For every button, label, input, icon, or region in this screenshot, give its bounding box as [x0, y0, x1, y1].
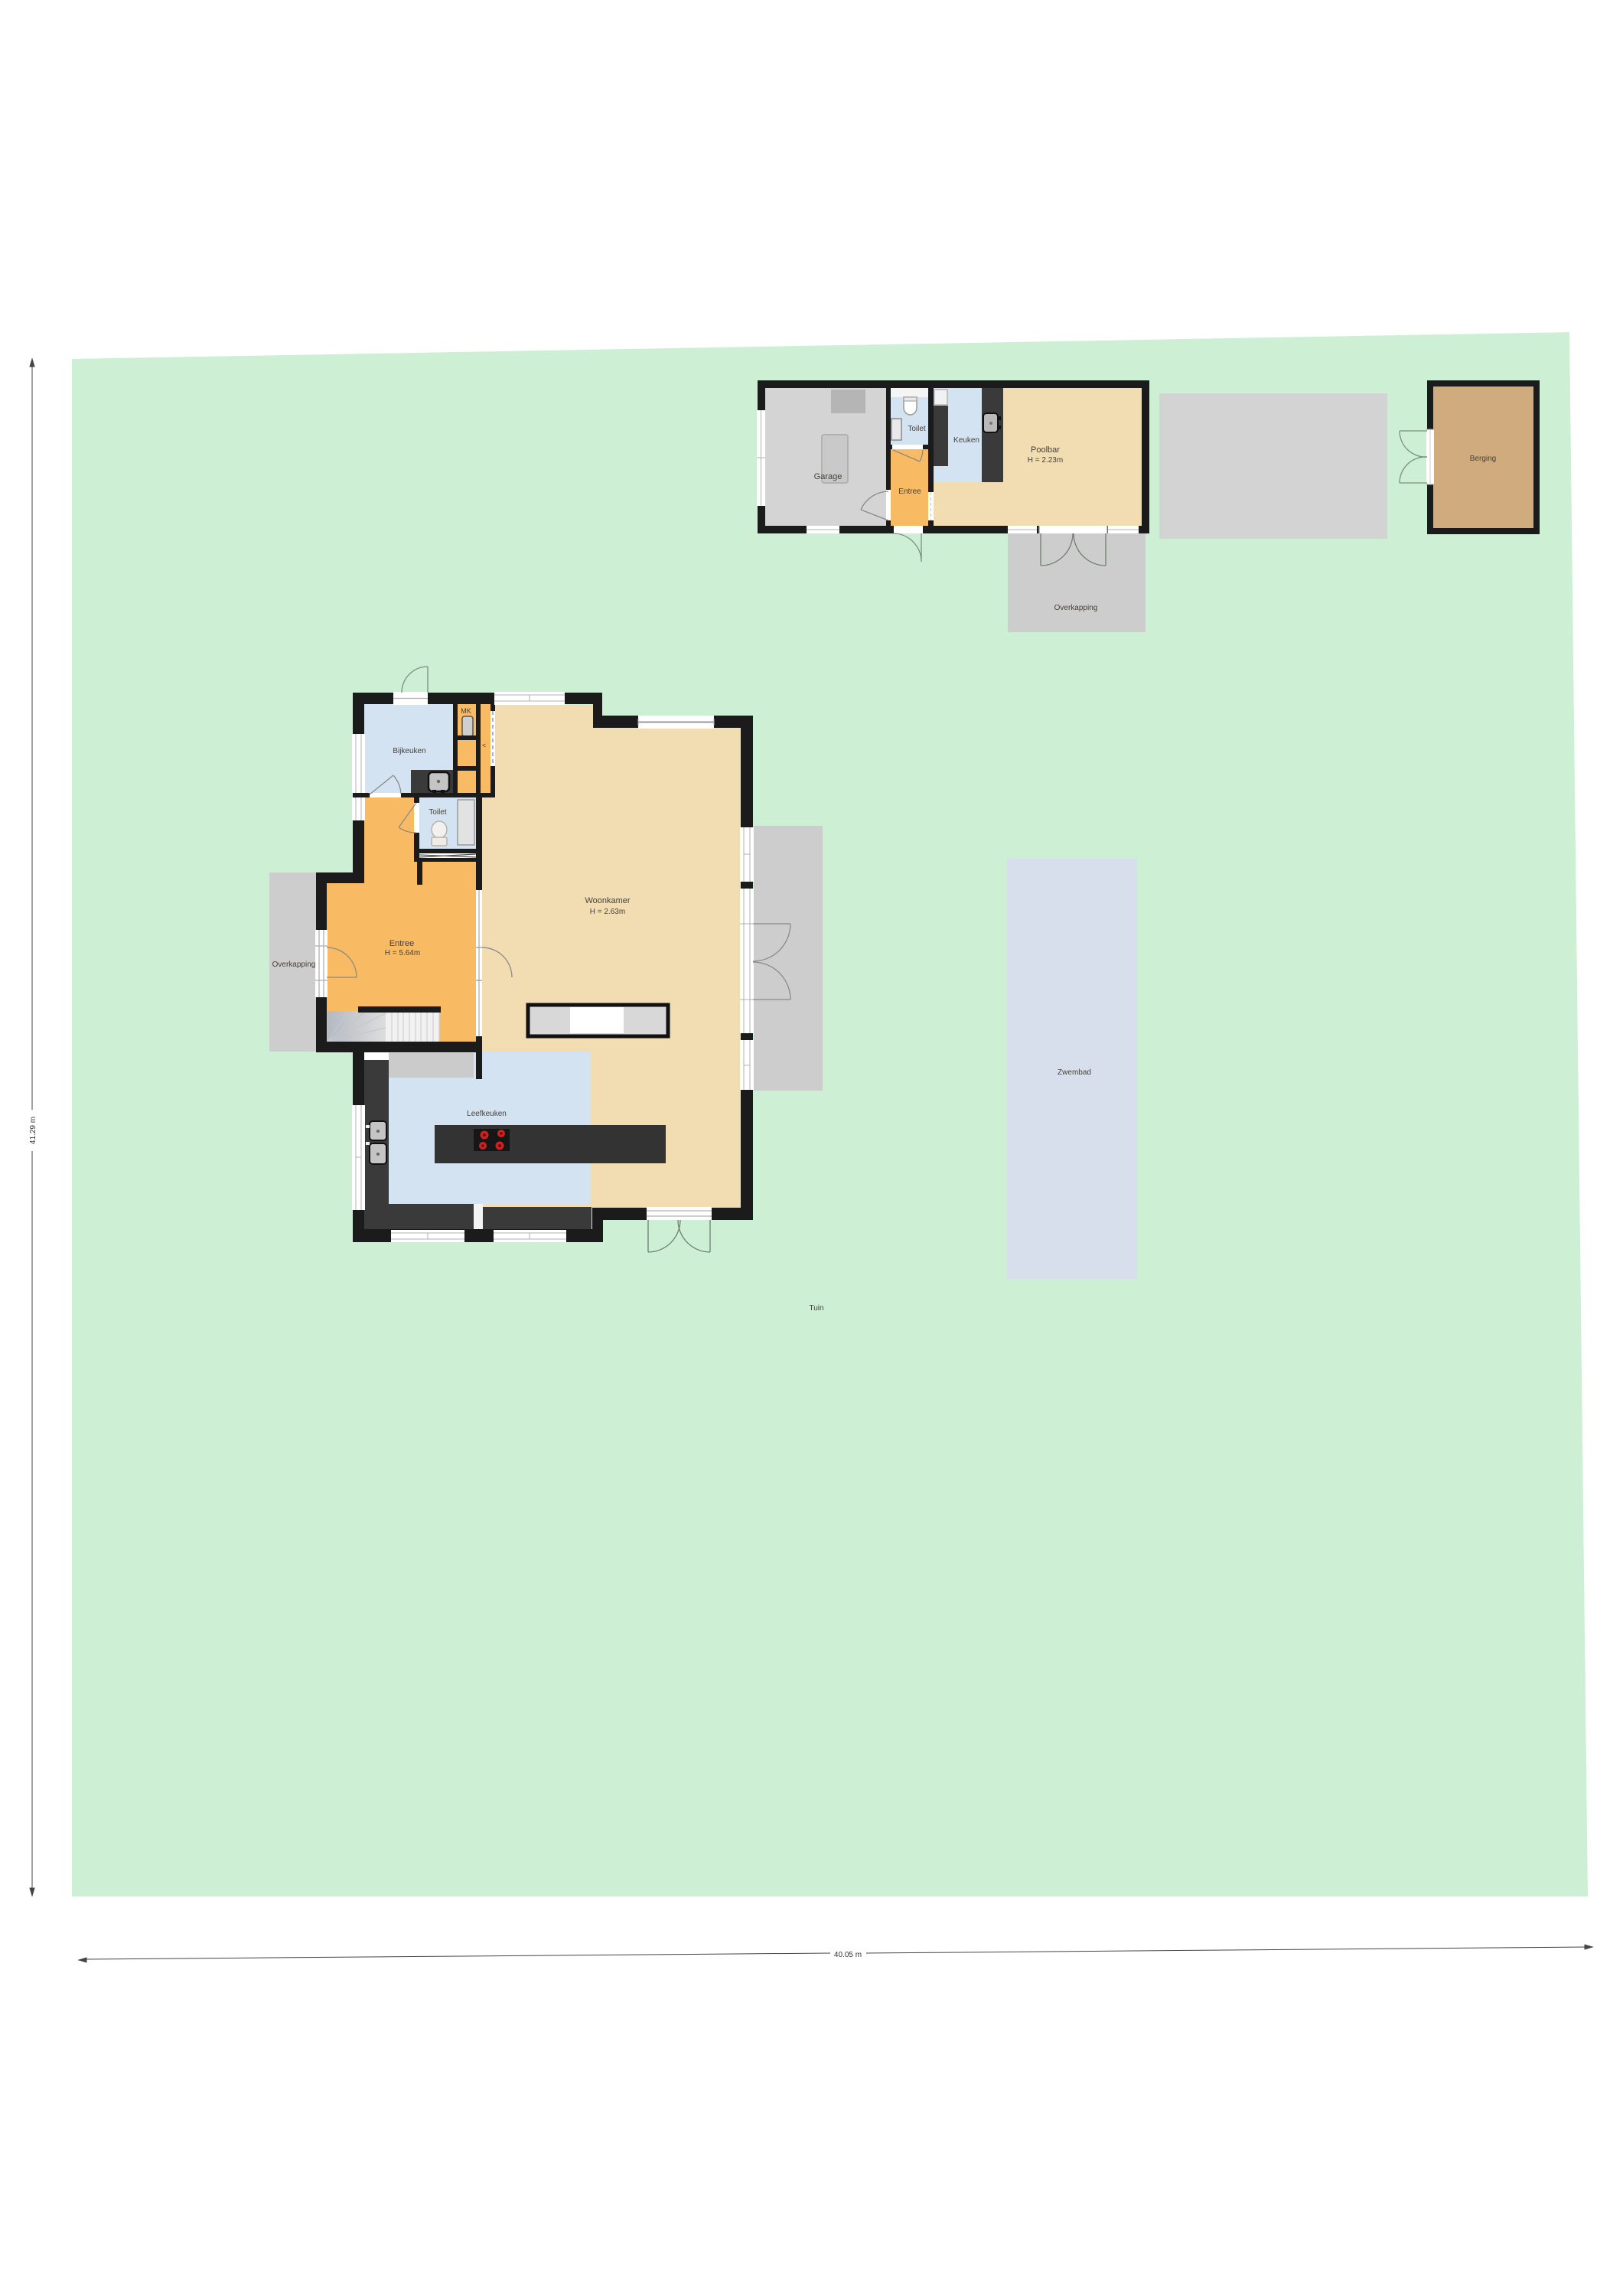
svg-text:H = 2.23m: H = 2.23m: [1028, 456, 1063, 465]
svg-text:Overkapping: Overkapping: [1054, 604, 1098, 612]
svg-text:Toilet: Toilet: [908, 425, 926, 433]
svg-text:Entree: Entree: [898, 488, 921, 496]
svg-text:H = 2.63m: H = 2.63m: [590, 908, 625, 916]
svg-text:Garage: Garage: [814, 472, 842, 481]
svg-text:Leefkeuken: Leefkeuken: [467, 1110, 507, 1118]
svg-text:Tuin: Tuin: [809, 1304, 823, 1313]
svg-text:Keuken: Keuken: [953, 436, 979, 445]
svg-text:40.05 m: 40.05 m: [834, 1951, 862, 1959]
svg-text:<: <: [482, 742, 486, 749]
svg-text:H = 5.64m: H = 5.64m: [385, 949, 420, 957]
svg-text:41.29 m: 41.29 m: [29, 1117, 37, 1144]
svg-text:Overkapping: Overkapping: [272, 960, 316, 969]
svg-text:MK: MK: [461, 707, 471, 715]
svg-text:Poolbar: Poolbar: [1031, 445, 1060, 455]
svg-text:Entree: Entree: [389, 939, 414, 948]
svg-text:Toilet: Toilet: [429, 808, 447, 817]
svg-text:Woonkamer: Woonkamer: [585, 896, 630, 905]
svg-text:Zwembad: Zwembad: [1058, 1068, 1091, 1077]
svg-text:Berging: Berging: [1470, 455, 1496, 463]
svg-text:Bijkeuken: Bijkeuken: [393, 747, 425, 755]
